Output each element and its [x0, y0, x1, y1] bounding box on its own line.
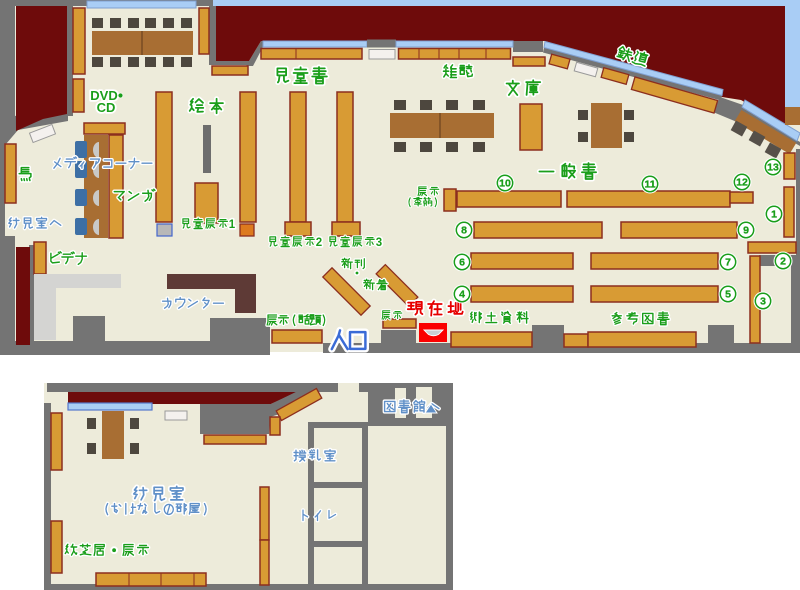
svg-text:3: 3: [760, 296, 766, 308]
svg-text:4: 4: [459, 289, 465, 301]
svg-text:3: 3: [376, 237, 382, 249]
svg-text:11: 11: [644, 179, 655, 191]
svg-text:5: 5: [725, 289, 731, 301]
svg-text:10: 10: [499, 178, 511, 190]
svg-text:1: 1: [771, 209, 777, 221]
svg-text:9: 9: [743, 225, 749, 237]
svg-text:8: 8: [461, 225, 467, 237]
svg-text:1: 1: [229, 219, 236, 231]
svg-text:13: 13: [767, 162, 779, 174]
svg-text:7: 7: [725, 257, 731, 269]
svg-text:2: 2: [316, 237, 322, 249]
svg-text:CD: CD: [97, 100, 116, 115]
svg-text:2: 2: [780, 256, 786, 268]
svg-text:12: 12: [736, 177, 748, 189]
svg-text:6: 6: [459, 257, 465, 269]
